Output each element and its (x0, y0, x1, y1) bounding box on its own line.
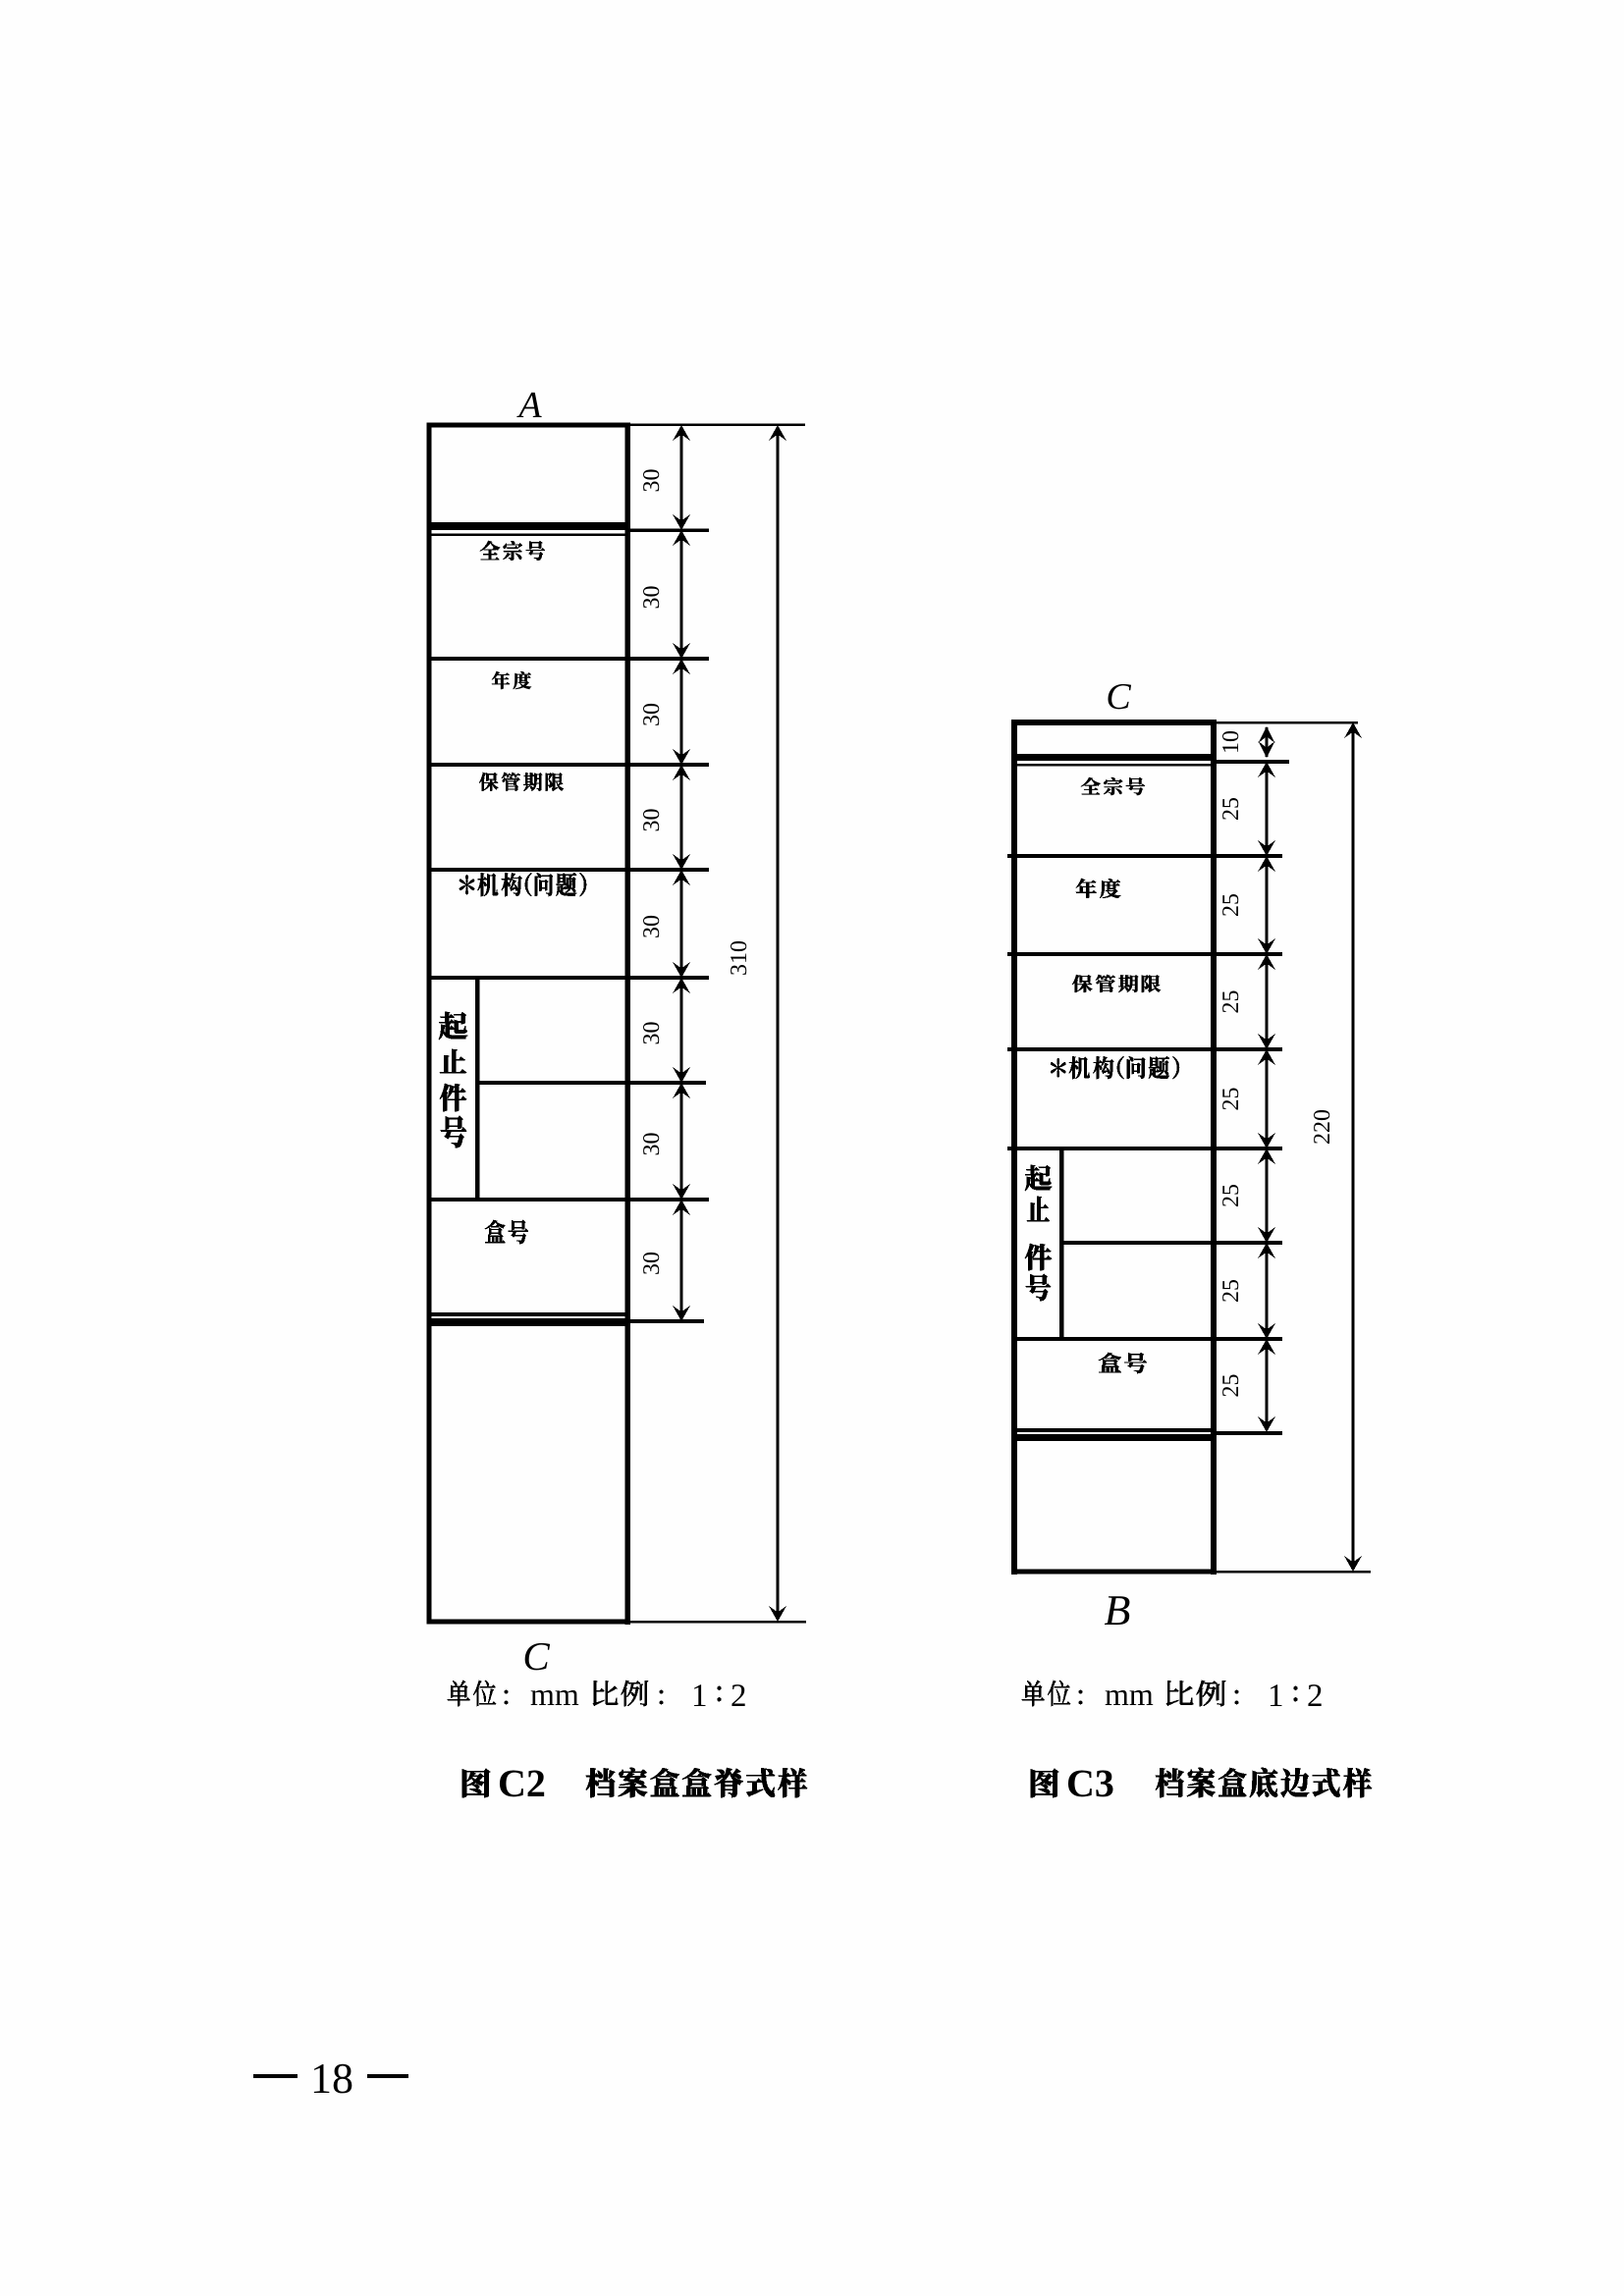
svg-text:25: 25 (1218, 1184, 1244, 1207)
svg-text:C3: C3 (1066, 1761, 1114, 1805)
svg-text:25: 25 (1218, 797, 1244, 821)
svg-text:C: C (1106, 676, 1131, 718)
svg-text:25: 25 (1218, 1374, 1244, 1398)
svg-text:1: 1 (1268, 1679, 1284, 1714)
svg-text:25: 25 (1218, 893, 1244, 917)
svg-text:25: 25 (1218, 1279, 1244, 1303)
svg-text:18: 18 (310, 2055, 353, 2103)
svg-text:30: 30 (639, 1022, 665, 1045)
svg-text:310: 310 (727, 940, 752, 976)
svg-text:A: A (515, 385, 542, 426)
svg-text:30: 30 (639, 809, 665, 832)
svg-text:2: 2 (1307, 1679, 1324, 1714)
svg-text:mm: mm (1105, 1677, 1154, 1712)
svg-text:25: 25 (1218, 1088, 1244, 1111)
svg-text:C: C (522, 1633, 550, 1679)
svg-text:30: 30 (639, 586, 665, 610)
svg-text:30: 30 (639, 469, 665, 493)
svg-text:1: 1 (691, 1679, 708, 1714)
svg-text:2: 2 (731, 1679, 747, 1714)
svg-text:25: 25 (1218, 990, 1244, 1014)
svg-text:C2: C2 (498, 1761, 546, 1805)
svg-text:30: 30 (639, 703, 665, 726)
svg-text:mm: mm (530, 1677, 579, 1712)
svg-text:10: 10 (1218, 730, 1244, 754)
svg-text:30: 30 (639, 915, 665, 938)
svg-text:30: 30 (639, 1252, 665, 1275)
svg-text:30: 30 (639, 1133, 665, 1156)
svg-text:B: B (1105, 1586, 1131, 1634)
svg-text:220: 220 (1310, 1109, 1335, 1145)
